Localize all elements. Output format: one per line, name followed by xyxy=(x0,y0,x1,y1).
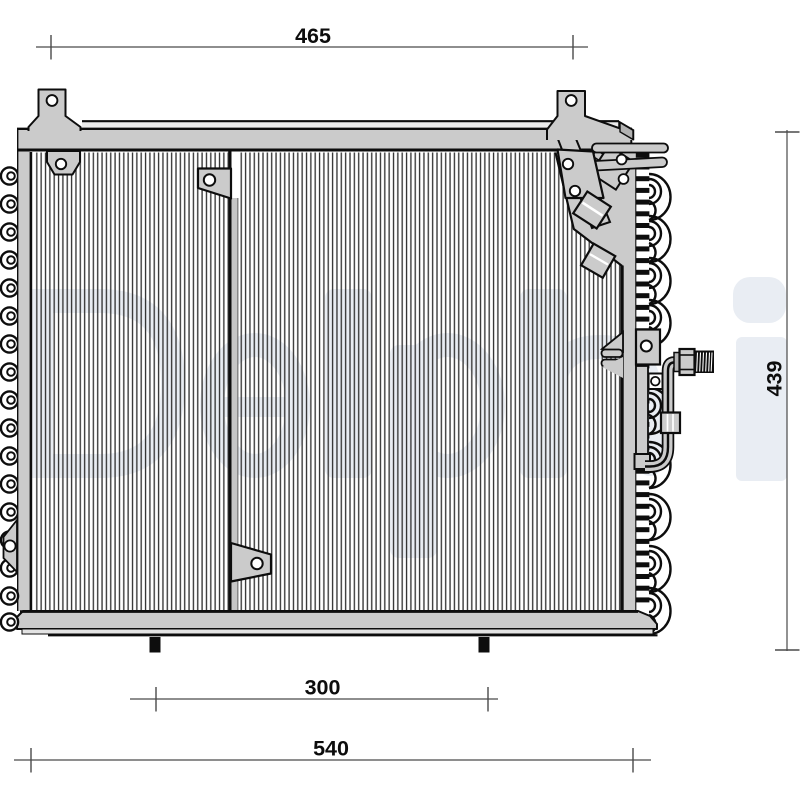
svg-text:439: 439 xyxy=(763,361,787,397)
svg-text:540: 540 xyxy=(313,737,349,761)
svg-text:300: 300 xyxy=(305,676,341,700)
svg-text:465: 465 xyxy=(295,24,331,48)
